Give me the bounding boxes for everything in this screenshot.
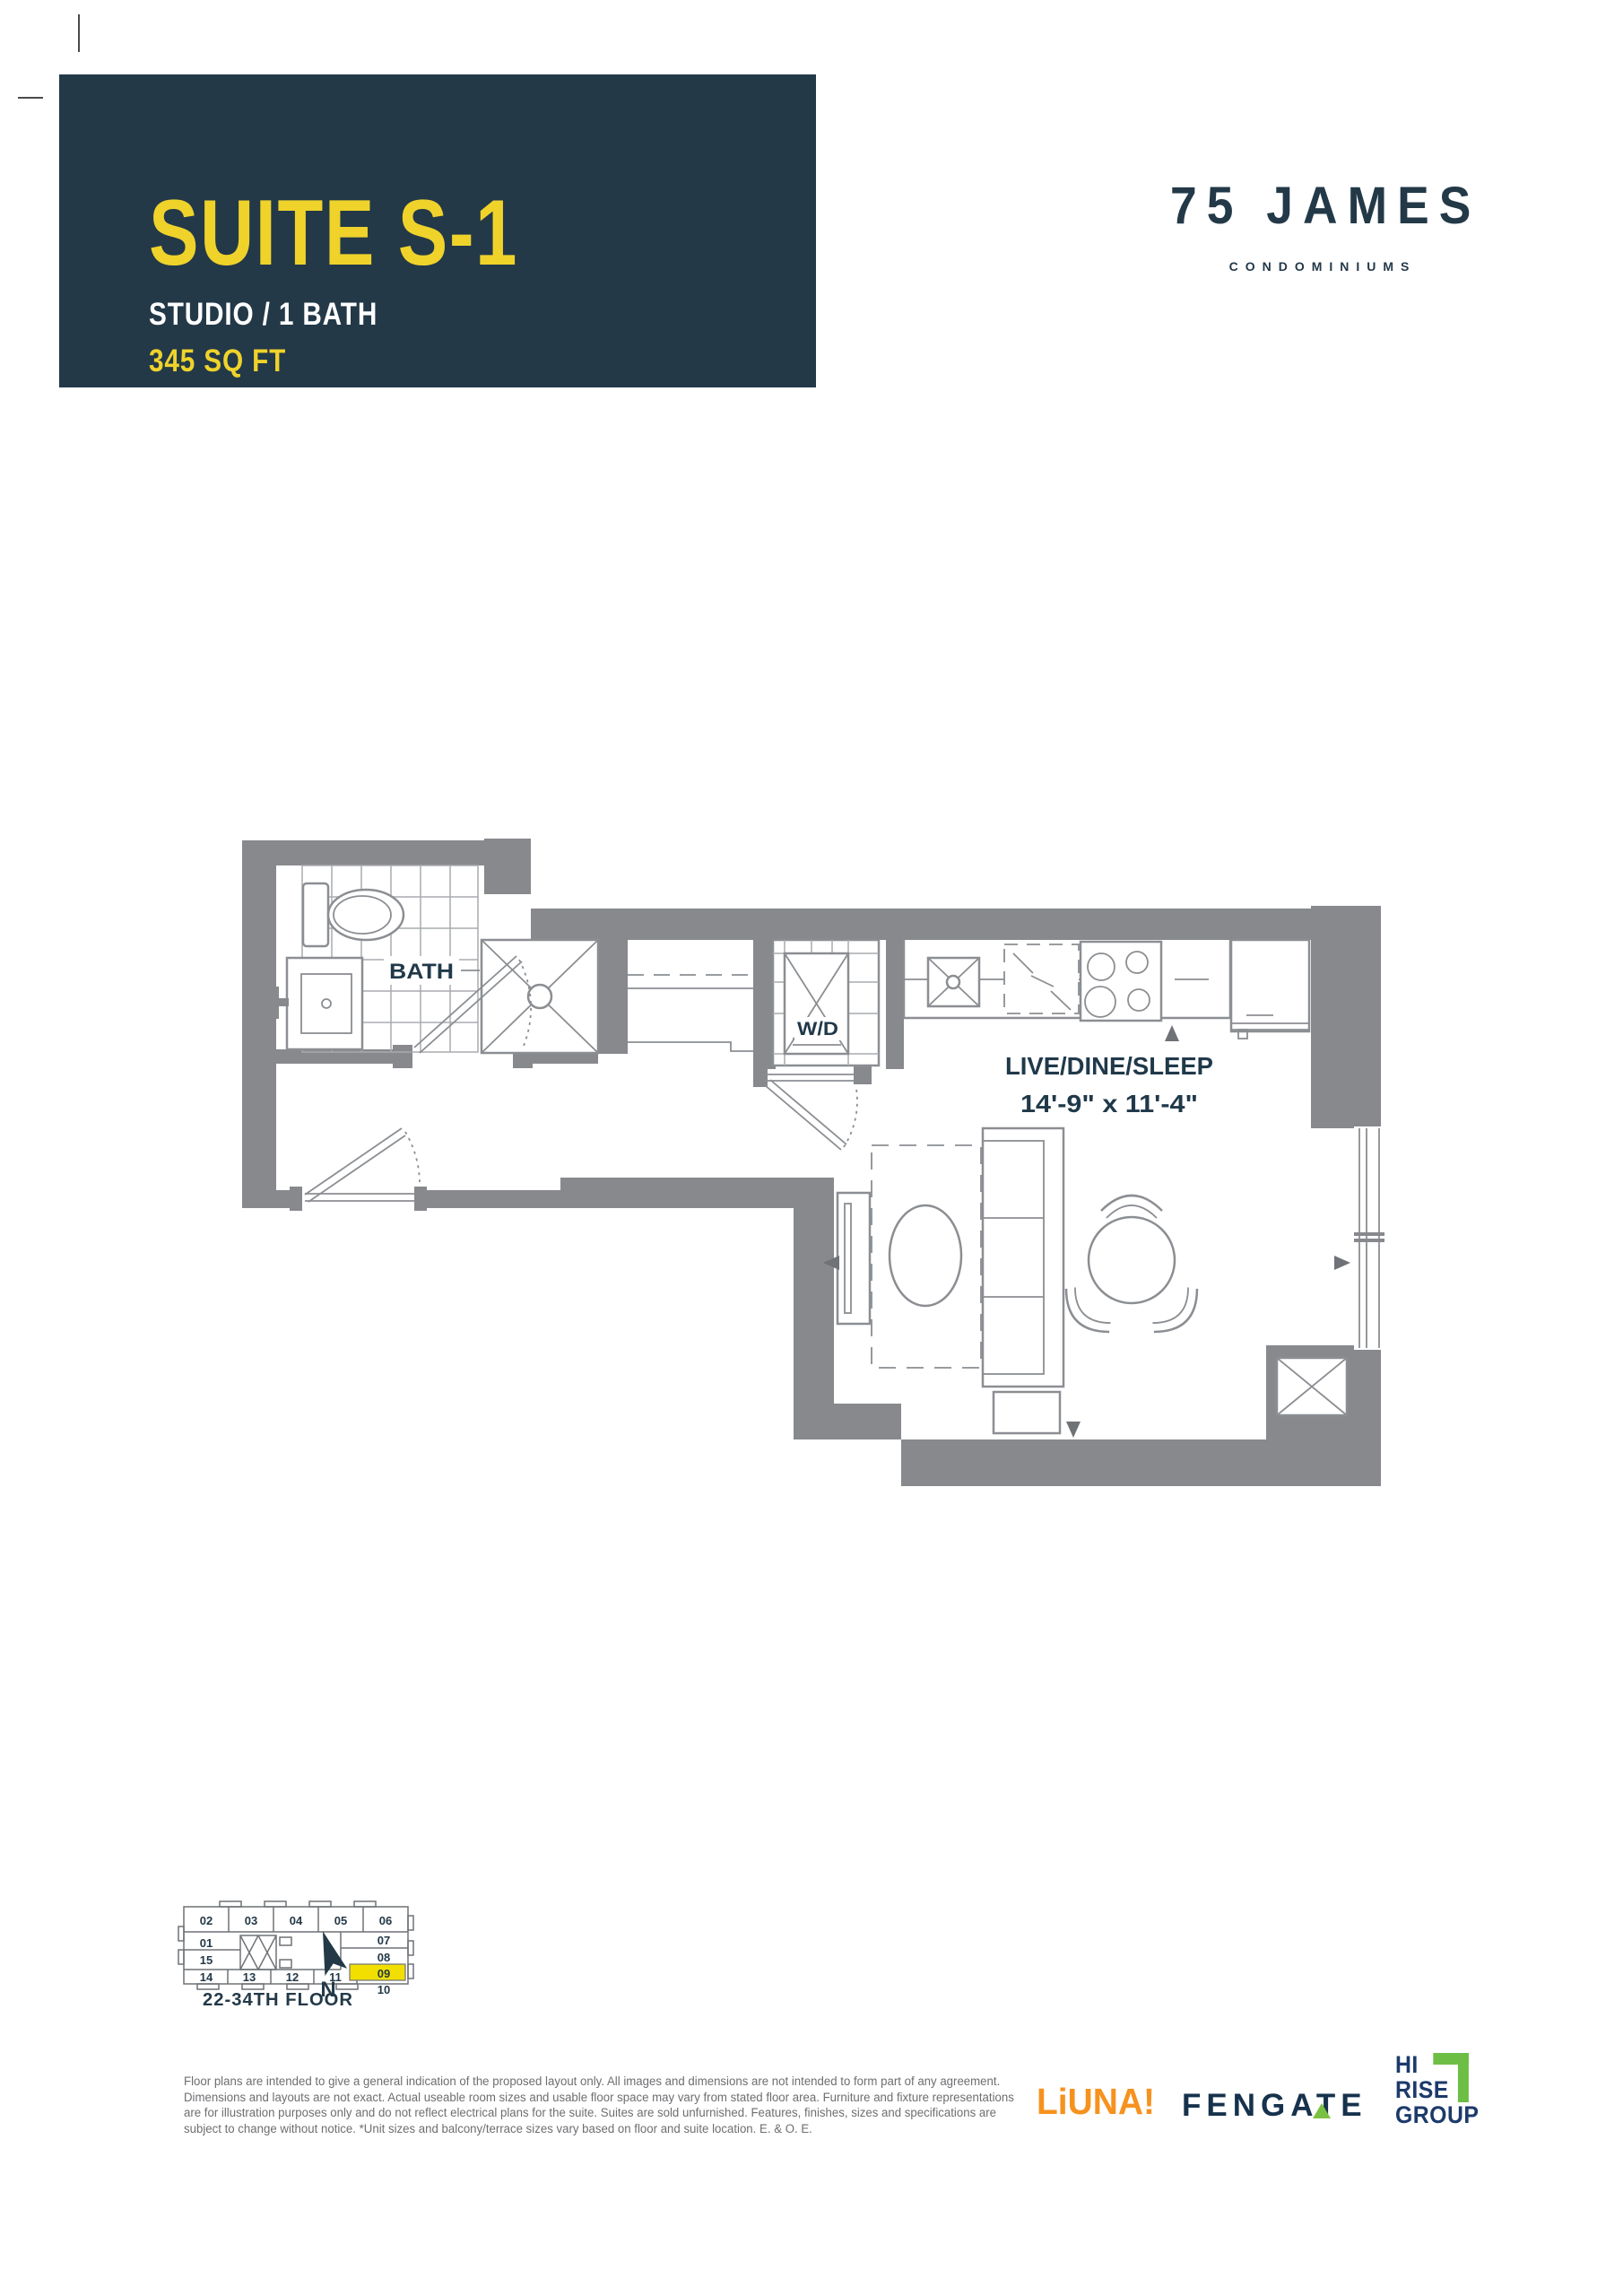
disclaimer-line: subject to change without notice. *Unit …: [184, 2121, 1063, 2137]
unit-01: 01: [200, 1936, 213, 1950]
unit-09: 09: [378, 1967, 390, 1980]
suite-title: SUITE S-1: [149, 180, 518, 287]
structural-column: [1277, 1358, 1347, 1415]
disclaimer-line: Dimensions and layouts are not exact. Ac…: [184, 2090, 1063, 2106]
unit-12: 12: [286, 1970, 299, 1984]
liuna-logo: LiUNA!: [1037, 2081, 1155, 2123]
hirise-corner-icon: [1433, 2053, 1469, 2102]
brand-name: 75 JAMES: [1170, 176, 1451, 236]
crop-mark-left: [18, 97, 43, 99]
key-plan: 02 03 04 05 06 01 15 07 08 09 14 13 12 1…: [135, 1891, 430, 2070]
wd-door: [765, 1080, 857, 1150]
kitchen-sink: [928, 958, 979, 1006]
unit-07: 07: [378, 1934, 390, 1947]
bed-area: [872, 1145, 981, 1368]
fengate-logo: FENGATE: [1182, 2088, 1367, 2124]
brand-logo: 75 JAMES CONDOMINIUMS: [1170, 176, 1475, 274]
suite-header-box: SUITE S-1 STUDIO / 1 BATH 345 SQ FT: [59, 74, 816, 387]
toilet: [303, 883, 404, 946]
bath-area: BATH: [265, 865, 598, 1053]
walls: [242, 839, 1381, 1486]
brand-subtitle: CONDOMINIUMS: [1170, 259, 1475, 274]
dim-arrow-down: [1066, 1422, 1081, 1438]
north-label: N: [320, 1978, 335, 2002]
shower: [482, 940, 598, 1053]
window: [1354, 1126, 1384, 1350]
unit-03: 03: [245, 1914, 257, 1927]
unit-05: 05: [334, 1914, 347, 1927]
washer-dryer: W/D: [764, 940, 879, 1150]
unit-13: 13: [243, 1970, 256, 1984]
coffee-table: [994, 1392, 1060, 1433]
crop-mark-top: [78, 14, 80, 52]
fengate-triangle-icon: [1313, 2103, 1331, 2118]
dim-arrow-right: [1334, 1256, 1350, 1270]
unit-08: 08: [378, 1951, 390, 1964]
elevator-core: [240, 1935, 291, 1970]
unit-15: 15: [200, 1953, 213, 1967]
closet: [628, 975, 753, 1051]
disclaimer-line: are for illustration purposes only and d…: [184, 2105, 1063, 2121]
stove: [1081, 942, 1161, 1021]
dim-arrow-up: [1165, 1025, 1179, 1041]
fridge: [1231, 940, 1309, 1039]
kitchen: [904, 940, 1309, 1039]
hirise-line: GROUP: [1395, 2102, 1494, 2127]
wd-label: W/D: [797, 1019, 838, 1039]
flyer-page: SUITE S-1 STUDIO / 1 BATH 345 SQ FT 75 J…: [0, 0, 1623, 2296]
dishwasher: [1004, 944, 1079, 1013]
disclaimer-line: Floor plans are intended to give a gener…: [184, 2074, 1063, 2090]
living-room-dimensions: 14'-9" x 11'-4": [1020, 1090, 1198, 1118]
unit-04: 04: [290, 1914, 303, 1927]
unit-02: 02: [200, 1914, 213, 1927]
tv-console: [838, 1193, 870, 1324]
unit-10: 10: [378, 1983, 390, 1996]
hirise-group-logo: HI RISE GROUP: [1395, 2052, 1494, 2127]
suite-area: 345 SQ FT: [149, 344, 286, 379]
dining-table: [1055, 1196, 1208, 1343]
disclaimer-text: Floor plans are intended to give a gener…: [184, 2074, 1063, 2136]
fengate-logo-text: FENGATE: [1182, 2088, 1367, 2123]
bath-label: BATH: [389, 960, 454, 984]
unit-14: 14: [200, 1970, 213, 1984]
floor-plan: BATH W/D: [215, 807, 1417, 1525]
key-plan-outline: 02 03 04 05 06 01 15 07 08 09 14 13 12 1…: [178, 1901, 413, 1996]
suite-type: STUDIO / 1 BATH: [149, 297, 378, 333]
unit-06: 06: [379, 1914, 392, 1927]
dining-chair: [1101, 1196, 1162, 1218]
living-room-label: LIVE/DINE/SLEEP: [1005, 1052, 1213, 1080]
entry-door: [305, 1128, 420, 1202]
sofa: [983, 1128, 1063, 1433]
bath-sink: [265, 958, 362, 1049]
